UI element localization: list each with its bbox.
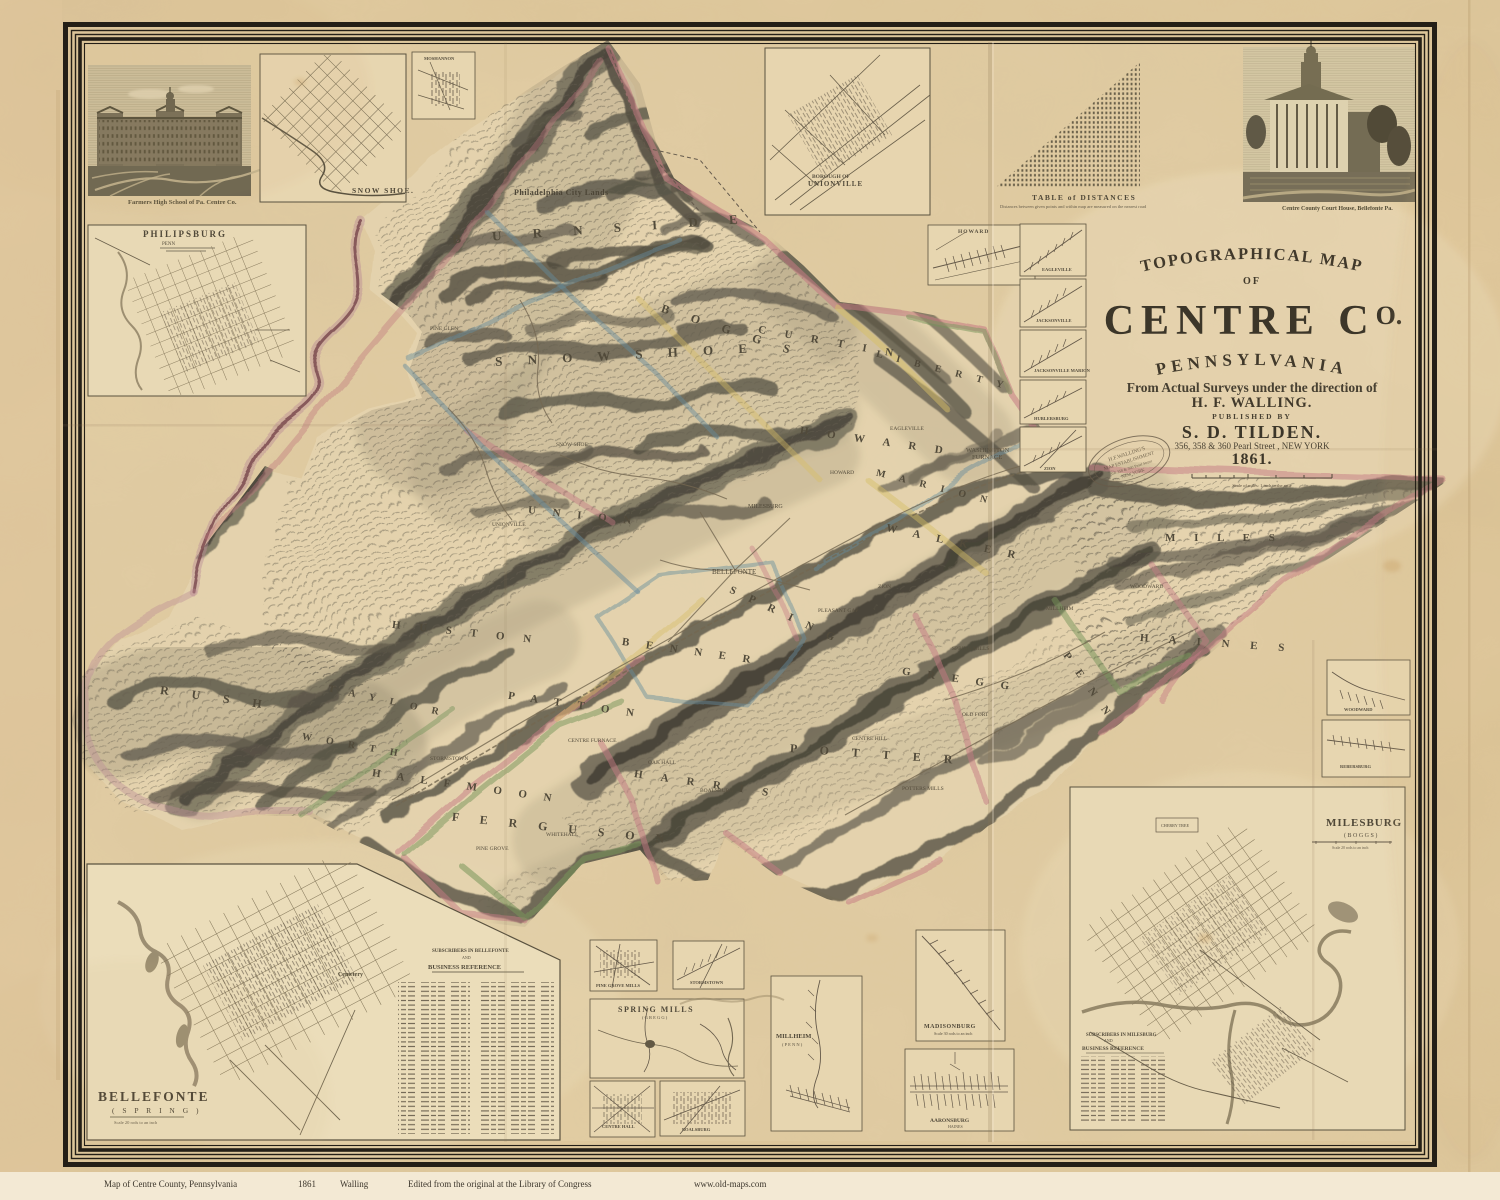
svg-text:1861: 1861 xyxy=(298,1179,316,1189)
svg-text:Edited from the original at th: Edited from the original at the Library … xyxy=(408,1179,592,1189)
svg-text:www.old-maps.com: www.old-maps.com xyxy=(694,1179,766,1189)
svg-text:Map of Centre County, Pennsylv: Map of Centre County, Pennsylvania xyxy=(104,1179,237,1189)
svg-text:Walling: Walling xyxy=(340,1179,369,1189)
